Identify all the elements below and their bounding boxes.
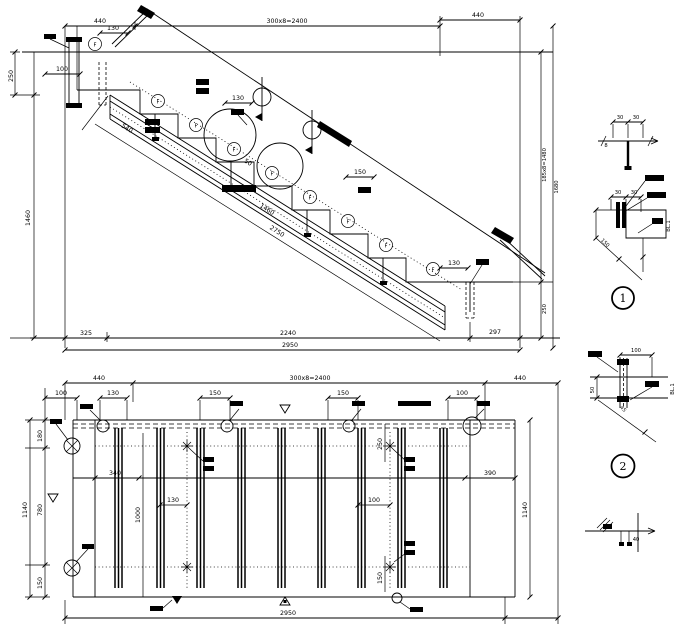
dim-label: 250 xyxy=(542,304,548,314)
level-mark-left xyxy=(48,494,58,502)
redacted-labels xyxy=(44,34,489,284)
bolt-marks xyxy=(50,419,94,576)
dim-label: 180 xyxy=(37,430,44,442)
tread-stripes xyxy=(115,428,447,588)
section-mark-bottom xyxy=(172,596,182,604)
dim-label: 2950 xyxy=(282,342,298,349)
dim-label: 8 xyxy=(604,143,607,149)
svg-text:F: F xyxy=(233,148,236,154)
dim-label: 2950 xyxy=(280,610,296,617)
f-mark: F xyxy=(228,143,241,156)
dim-label: 390 xyxy=(484,470,496,477)
dim-label: 1460 xyxy=(25,210,32,226)
dim-label: 130 xyxy=(107,25,119,32)
dim-label: 50 xyxy=(590,387,596,394)
plan-dim-lines xyxy=(25,381,561,625)
stair-flight xyxy=(77,5,545,341)
detail-1: 30 30 8 30 30 BL.1 xyxy=(594,115,673,309)
dim-label: 40 xyxy=(633,537,640,543)
dim-label: 2240 xyxy=(280,330,296,337)
dim-label: 185x8=1480 xyxy=(542,148,548,182)
dim-label: 50 xyxy=(243,158,254,168)
detail-number: 1 xyxy=(620,292,627,305)
section-mark xyxy=(253,77,321,154)
f-mark: F xyxy=(427,263,440,276)
plate-label: BL.1 xyxy=(666,220,672,231)
svg-text:F: F xyxy=(195,124,198,130)
f-mark: F xyxy=(152,95,165,108)
svg-text:F: F xyxy=(157,100,160,106)
f-marks: F F F F F F F F F xyxy=(89,38,440,276)
dim-label: 150 xyxy=(37,577,44,589)
detail-2: 100 50 BL.1 45 2 xyxy=(588,348,676,478)
dim-label: 440 xyxy=(514,375,526,382)
plan-dim-labels: 440 300x8=2400 440 100 130 150 150 100 1… xyxy=(22,375,529,617)
dim-label: 300x8=2400 xyxy=(266,18,307,25)
dim-label: 150 xyxy=(209,390,221,397)
svg-text:F: F xyxy=(309,196,312,202)
dim-label: 250 xyxy=(8,70,15,82)
plan-view: 440 300x8=2400 440 100 130 150 150 100 1… xyxy=(22,375,561,624)
dim-label: 440 xyxy=(94,18,106,25)
dim-label: 1680 xyxy=(554,180,560,193)
detail-1-upper: 30 30 8 xyxy=(598,115,658,170)
dim-label: 780 xyxy=(37,504,44,516)
dim-label: 100 xyxy=(631,348,641,354)
level-markers xyxy=(48,405,423,612)
detail-callout-circle-2 xyxy=(257,143,303,189)
f-mark: F xyxy=(342,215,355,228)
detail-1-main: 30 30 BL.1 150 xyxy=(594,175,673,280)
f-mark: F xyxy=(304,191,317,204)
dim-label: 440 xyxy=(472,12,484,19)
dim-label: 130 xyxy=(448,260,460,267)
elevation-dim-lines xyxy=(10,16,560,353)
svg-text:F: F xyxy=(432,268,435,274)
weld-hatch xyxy=(491,227,514,244)
detail-3: 40 xyxy=(585,513,655,552)
dim-label: 30 xyxy=(617,115,624,121)
dim-label: 1000 xyxy=(135,507,142,523)
dim-label: 440 xyxy=(93,375,105,382)
dim-label: 297 xyxy=(489,329,501,336)
dim-label: 150 xyxy=(377,572,384,584)
anchor-stars xyxy=(181,440,415,573)
elevation-view: 440 300x8=2400 440 250 100 1460 130 130 … xyxy=(8,5,560,353)
detail-number: 2 xyxy=(620,460,627,473)
dim-label: 30 xyxy=(633,115,640,121)
dim-label: 1140 xyxy=(522,502,529,518)
dim-label: 1460 xyxy=(258,203,275,217)
plate-label: BL.1 xyxy=(670,383,676,394)
dim-label: 100 xyxy=(56,66,68,73)
dim-label: 325 xyxy=(80,330,92,337)
svg-text:F: F xyxy=(271,172,274,178)
dim-label: 130 xyxy=(232,95,244,102)
f-mark: F xyxy=(266,167,279,180)
dim-label: 30 xyxy=(615,190,622,196)
dim-label: 150 xyxy=(599,238,610,249)
svg-text:F: F xyxy=(385,244,388,250)
dim-label: 150 xyxy=(354,169,366,176)
f-mark: F xyxy=(380,239,393,252)
level-mark-top xyxy=(280,405,290,413)
dim-label: 150 xyxy=(337,390,349,397)
f-mark: F xyxy=(89,38,102,51)
weld-hatch xyxy=(317,121,352,147)
f-mark: F xyxy=(190,119,203,132)
detail-1-number: 1 xyxy=(612,287,634,309)
title-bar-redacted xyxy=(398,401,431,406)
dim-label: 100 xyxy=(368,497,380,504)
dim-label: 130 xyxy=(167,497,179,504)
detail-2-number: 2 xyxy=(612,455,635,478)
dim-label: 2750 xyxy=(268,225,285,239)
stair-drawing: 440 300x8=2400 440 250 100 1460 130 130 … xyxy=(0,0,685,638)
dim-label: 250 xyxy=(377,438,384,450)
detail-callout-circle-1 xyxy=(204,109,256,161)
svg-text:F: F xyxy=(347,220,350,226)
dim-label: 100 xyxy=(55,390,67,397)
step-anchors xyxy=(66,37,474,318)
dim-label: 100 xyxy=(456,390,468,397)
cad-drawing-canvas: 440 300x8=2400 440 250 100 1460 130 130 … xyxy=(0,0,685,638)
dim-label: 300x8=2400 xyxy=(289,375,330,382)
elevation-dim-labels: 440 300x8=2400 440 250 100 1460 130 130 … xyxy=(8,12,560,349)
dim-label: 1140 xyxy=(22,502,29,518)
f-mark-label: F xyxy=(94,43,97,49)
step-profile xyxy=(77,90,513,282)
dim-label: 130 xyxy=(107,390,119,397)
